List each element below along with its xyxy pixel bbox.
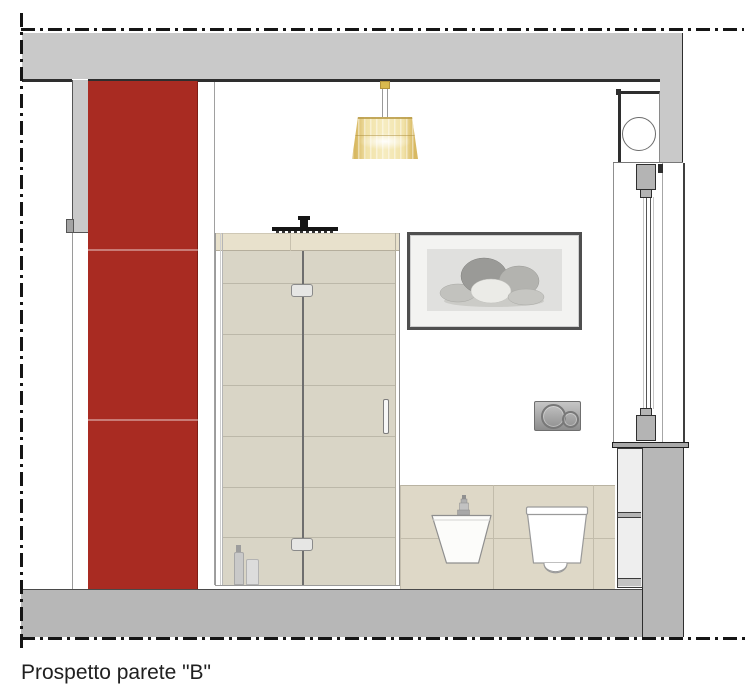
shower-door-handle [383, 399, 389, 434]
wall-hung-toilet [525, 505, 589, 578]
lamp-cord [387, 89, 388, 118]
tile-grout-line [222, 487, 395, 488]
shutter-roller-circle [622, 117, 656, 151]
shower-top-tile-band [215, 233, 399, 251]
pilaster-foot [66, 219, 74, 233]
shampoo-bottle [234, 552, 244, 585]
lamp-shade-crease [352, 135, 418, 136]
window-frame-bottom [636, 415, 656, 441]
shower-door-edge-line [302, 251, 304, 586]
ceiling-section [22, 33, 683, 79]
pebbles-artwork [427, 249, 562, 311]
glazing-line-faint [643, 197, 644, 409]
red-panel-joint-upper [88, 249, 198, 251]
caption-label: Prospetto parete "B" [21, 661, 211, 685]
glazing-line [646, 197, 647, 409]
shelf-base [618, 578, 641, 586]
shower-glass-edge-line [215, 233, 216, 586]
window-frame-detail [658, 164, 663, 173]
shower-glass-edge-line [395, 233, 396, 586]
tile-grout-line [222, 385, 395, 386]
soap-bottle [246, 559, 259, 585]
shower-door-hinge-bottom [291, 538, 313, 551]
floor-section [21, 589, 684, 637]
shower-tray-line [215, 585, 399, 586]
shower-door-hinge-top [291, 284, 313, 297]
wall-inner-face-line [683, 163, 685, 443]
red-panel-joint-lower [88, 419, 198, 421]
lamp-cord [382, 89, 383, 118]
wainscot-joint [593, 485, 594, 589]
elevation-drawing-canvas: Prospetto parete "B" [0, 0, 750, 696]
glazing-line [650, 197, 651, 409]
window-reveal-line [613, 163, 614, 443]
shower-nozzles [276, 231, 334, 233]
boundary-line-bottom [21, 637, 750, 640]
parapet-wall [642, 448, 684, 637]
red-cabinet-panel [88, 81, 198, 589]
flush-button-small [562, 411, 579, 428]
boundary-line-top [21, 28, 744, 31]
right-wall-edge-line [682, 33, 684, 163]
shower-glass-edge-line [222, 233, 223, 586]
shelf-unit [617, 448, 643, 588]
ceiling-edge-line-left [22, 79, 72, 82]
shutter-box-detail [616, 89, 621, 95]
shelf-divider [618, 512, 641, 518]
tile-grout-line [222, 334, 395, 335]
pendant-lamp-shade [352, 117, 418, 159]
window-reveal-line [662, 163, 663, 443]
toilet-flush-plate [534, 401, 581, 431]
boundary-line-left [20, 13, 23, 650]
shower-tile-wall [222, 251, 395, 586]
right-wall-upper-section [660, 79, 683, 163]
bidet [431, 494, 493, 564]
pebbles-illustration [427, 249, 562, 311]
shower-glass-edge-line [220, 233, 221, 586]
shutter-box-bottom-line [613, 162, 683, 163]
bidet-shape [431, 494, 493, 564]
lamp-shade-rim [352, 117, 418, 119]
tile-grout-line [222, 436, 395, 437]
picture-frame [407, 232, 582, 330]
window-frame-top [636, 164, 656, 190]
left-wall-line [72, 233, 73, 589]
window-frame-top-step [640, 189, 652, 198]
glazing-line-faint [653, 197, 654, 409]
shower-band-joint [290, 233, 291, 251]
wainscot-joint [493, 485, 494, 589]
toilet-shape [525, 505, 589, 578]
lamp-canopy [380, 81, 390, 89]
left-wall-pilaster [72, 80, 88, 233]
